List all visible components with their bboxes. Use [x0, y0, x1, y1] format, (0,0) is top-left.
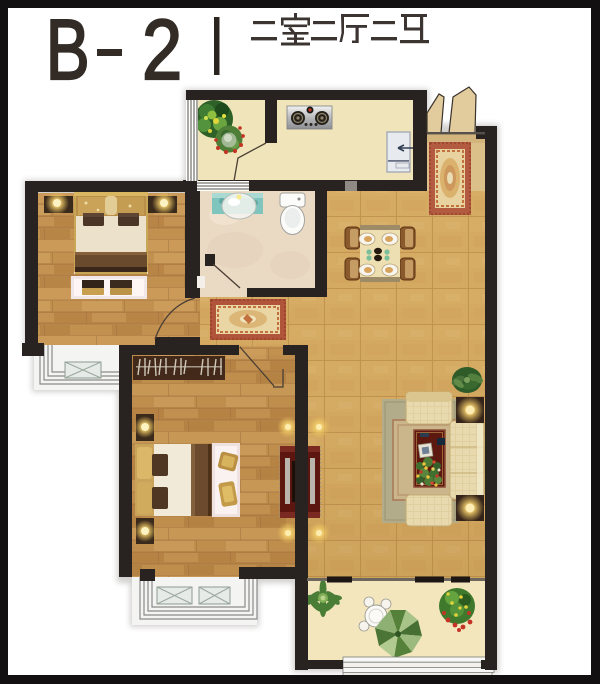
svg-text:2: 2 [142, 2, 182, 97]
svg-text:B: B [46, 3, 90, 98]
